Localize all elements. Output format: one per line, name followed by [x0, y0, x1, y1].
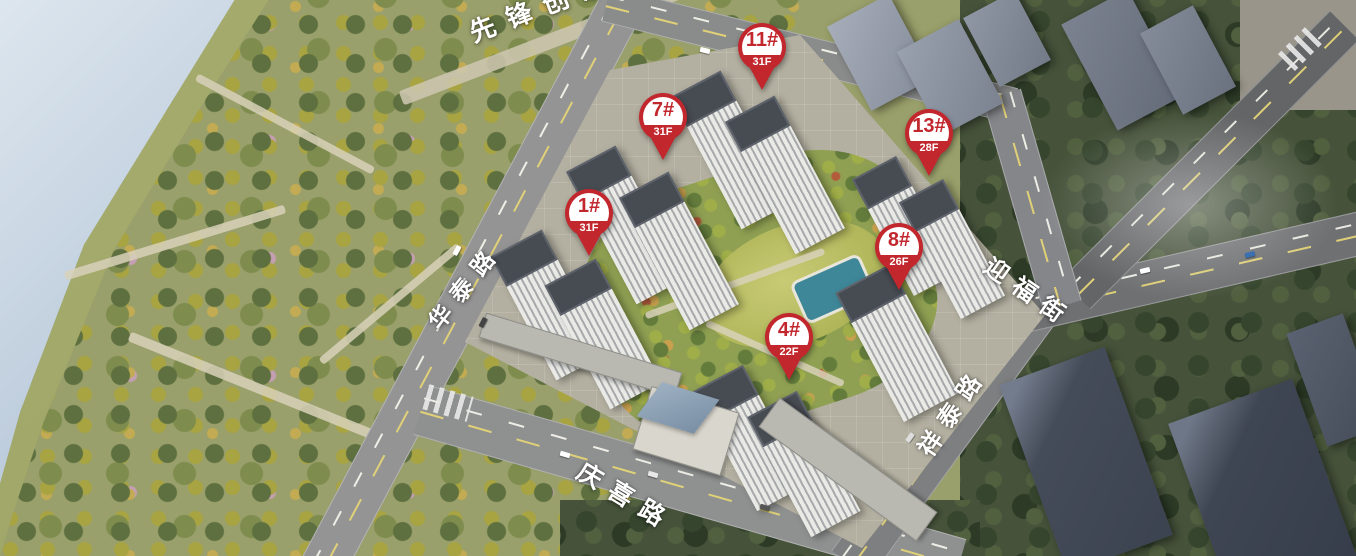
building-number: 4#: [765, 316, 813, 344]
pin-tail: [777, 358, 801, 380]
pin-head: 13# 28F: [905, 109, 953, 157]
building-floors: 31F: [738, 55, 786, 71]
pin-head: 8# 26F: [875, 223, 923, 271]
pin-tail: [750, 68, 774, 90]
building-marker-13[interactable]: 13# 28F: [905, 109, 953, 179]
building-floors: 31F: [565, 221, 613, 237]
aerial-site-plan: 先锋创意 华泰路 迎福街 祥泰路 庆喜路 1# 31F 4# 22F 7# 31…: [0, 0, 1356, 556]
building-marker-11[interactable]: 11# 31F: [738, 23, 786, 93]
building-floors: 22F: [765, 345, 813, 361]
pin-head: 1# 31F: [565, 189, 613, 237]
building-floors: 31F: [639, 125, 687, 141]
pin-tail: [651, 138, 675, 160]
building-marker-7[interactable]: 7# 31F: [639, 93, 687, 163]
building-marker-1[interactable]: 1# 31F: [565, 189, 613, 259]
pin-tail: [577, 234, 601, 256]
building-number: 7#: [639, 96, 687, 124]
pin-tail: [917, 154, 941, 176]
pin-head: 4# 22F: [765, 313, 813, 361]
building-marker-8[interactable]: 8# 26F: [875, 223, 923, 293]
pin-head: 11# 31F: [738, 23, 786, 71]
building-floors: 28F: [905, 141, 953, 157]
pin-head: 7# 31F: [639, 93, 687, 141]
building-number: 1#: [565, 192, 613, 220]
building-number: 11#: [738, 26, 786, 54]
building-number: 8#: [875, 226, 923, 254]
pin-tail: [887, 268, 911, 290]
atmospheric-haze: [1040, 110, 1340, 300]
building-floors: 26F: [875, 255, 923, 271]
building-marker-4[interactable]: 4# 22F: [765, 313, 813, 383]
building-number: 13#: [905, 112, 953, 140]
